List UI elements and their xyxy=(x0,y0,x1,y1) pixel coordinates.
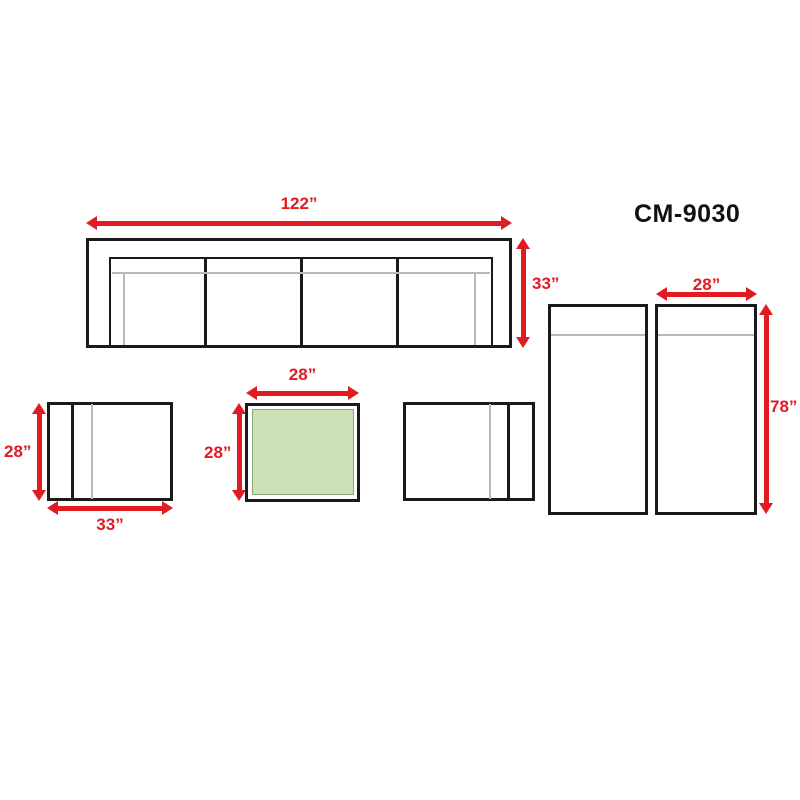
arrow-head-bottom-icon xyxy=(232,490,246,501)
furniture-dimension-diagram: CM-9030 122” 33” 28” 78” xyxy=(0,0,800,800)
side-chair-right-outline xyxy=(403,402,535,501)
sofa-depth-label: 33” xyxy=(532,275,559,292)
arrow-head-bottom-icon xyxy=(516,337,530,348)
side-chair-right-arm-line xyxy=(507,404,510,499)
arrow-head-bottom-icon xyxy=(32,490,46,501)
sofa-seat-2 xyxy=(204,257,303,347)
side-chair-width-label: 33” xyxy=(47,516,173,533)
arrow-shaft xyxy=(37,412,42,492)
arrow-shaft xyxy=(521,247,526,339)
arrow-shaft xyxy=(56,506,164,511)
arrow-head-right-icon xyxy=(501,216,512,230)
chaise-left-headrest-line xyxy=(551,334,645,336)
sofa-seat-4 xyxy=(396,257,493,347)
side-chair-cushion-line xyxy=(91,404,93,499)
chaise-length-label: 78” xyxy=(770,398,797,415)
sofa-width-label: 122” xyxy=(86,195,512,212)
side-chair-depth-label: 28” xyxy=(4,443,31,460)
side-chair-right-cushion-line xyxy=(489,404,491,499)
coffee-table-width-label: 28” xyxy=(246,366,359,383)
arrow-shaft xyxy=(255,391,350,396)
side-chair-width-arrow xyxy=(47,500,173,516)
sofa-cushion-line xyxy=(112,272,490,274)
coffee-table-width-arrow xyxy=(246,385,359,401)
side-chair-depth-arrow xyxy=(31,403,47,501)
coffee-table-depth-arrow xyxy=(231,403,247,501)
coffee-table-depth-label: 28” xyxy=(204,444,231,461)
sofa-left-arm-line xyxy=(123,274,125,345)
arrow-shaft xyxy=(237,412,242,492)
side-chair-arm-line xyxy=(71,404,74,499)
arrow-shaft xyxy=(764,313,769,505)
side-chair-outline xyxy=(47,402,173,501)
chaise-right-headrest-line xyxy=(658,334,754,336)
arrow-head-right-icon xyxy=(162,501,173,515)
sofa-depth-arrow xyxy=(515,238,531,348)
arrow-shaft xyxy=(95,221,503,226)
sofa-right-arm-line xyxy=(474,274,476,345)
sofa-width-arrow xyxy=(86,215,512,231)
coffee-table-glass-top xyxy=(252,409,354,495)
chaise-width-label: 28” xyxy=(656,276,757,293)
arrow-head-bottom-icon xyxy=(759,503,773,514)
model-number-label: CM-9030 xyxy=(634,202,740,227)
arrow-head-right-icon xyxy=(348,386,359,400)
sofa-seat-3 xyxy=(300,257,399,347)
